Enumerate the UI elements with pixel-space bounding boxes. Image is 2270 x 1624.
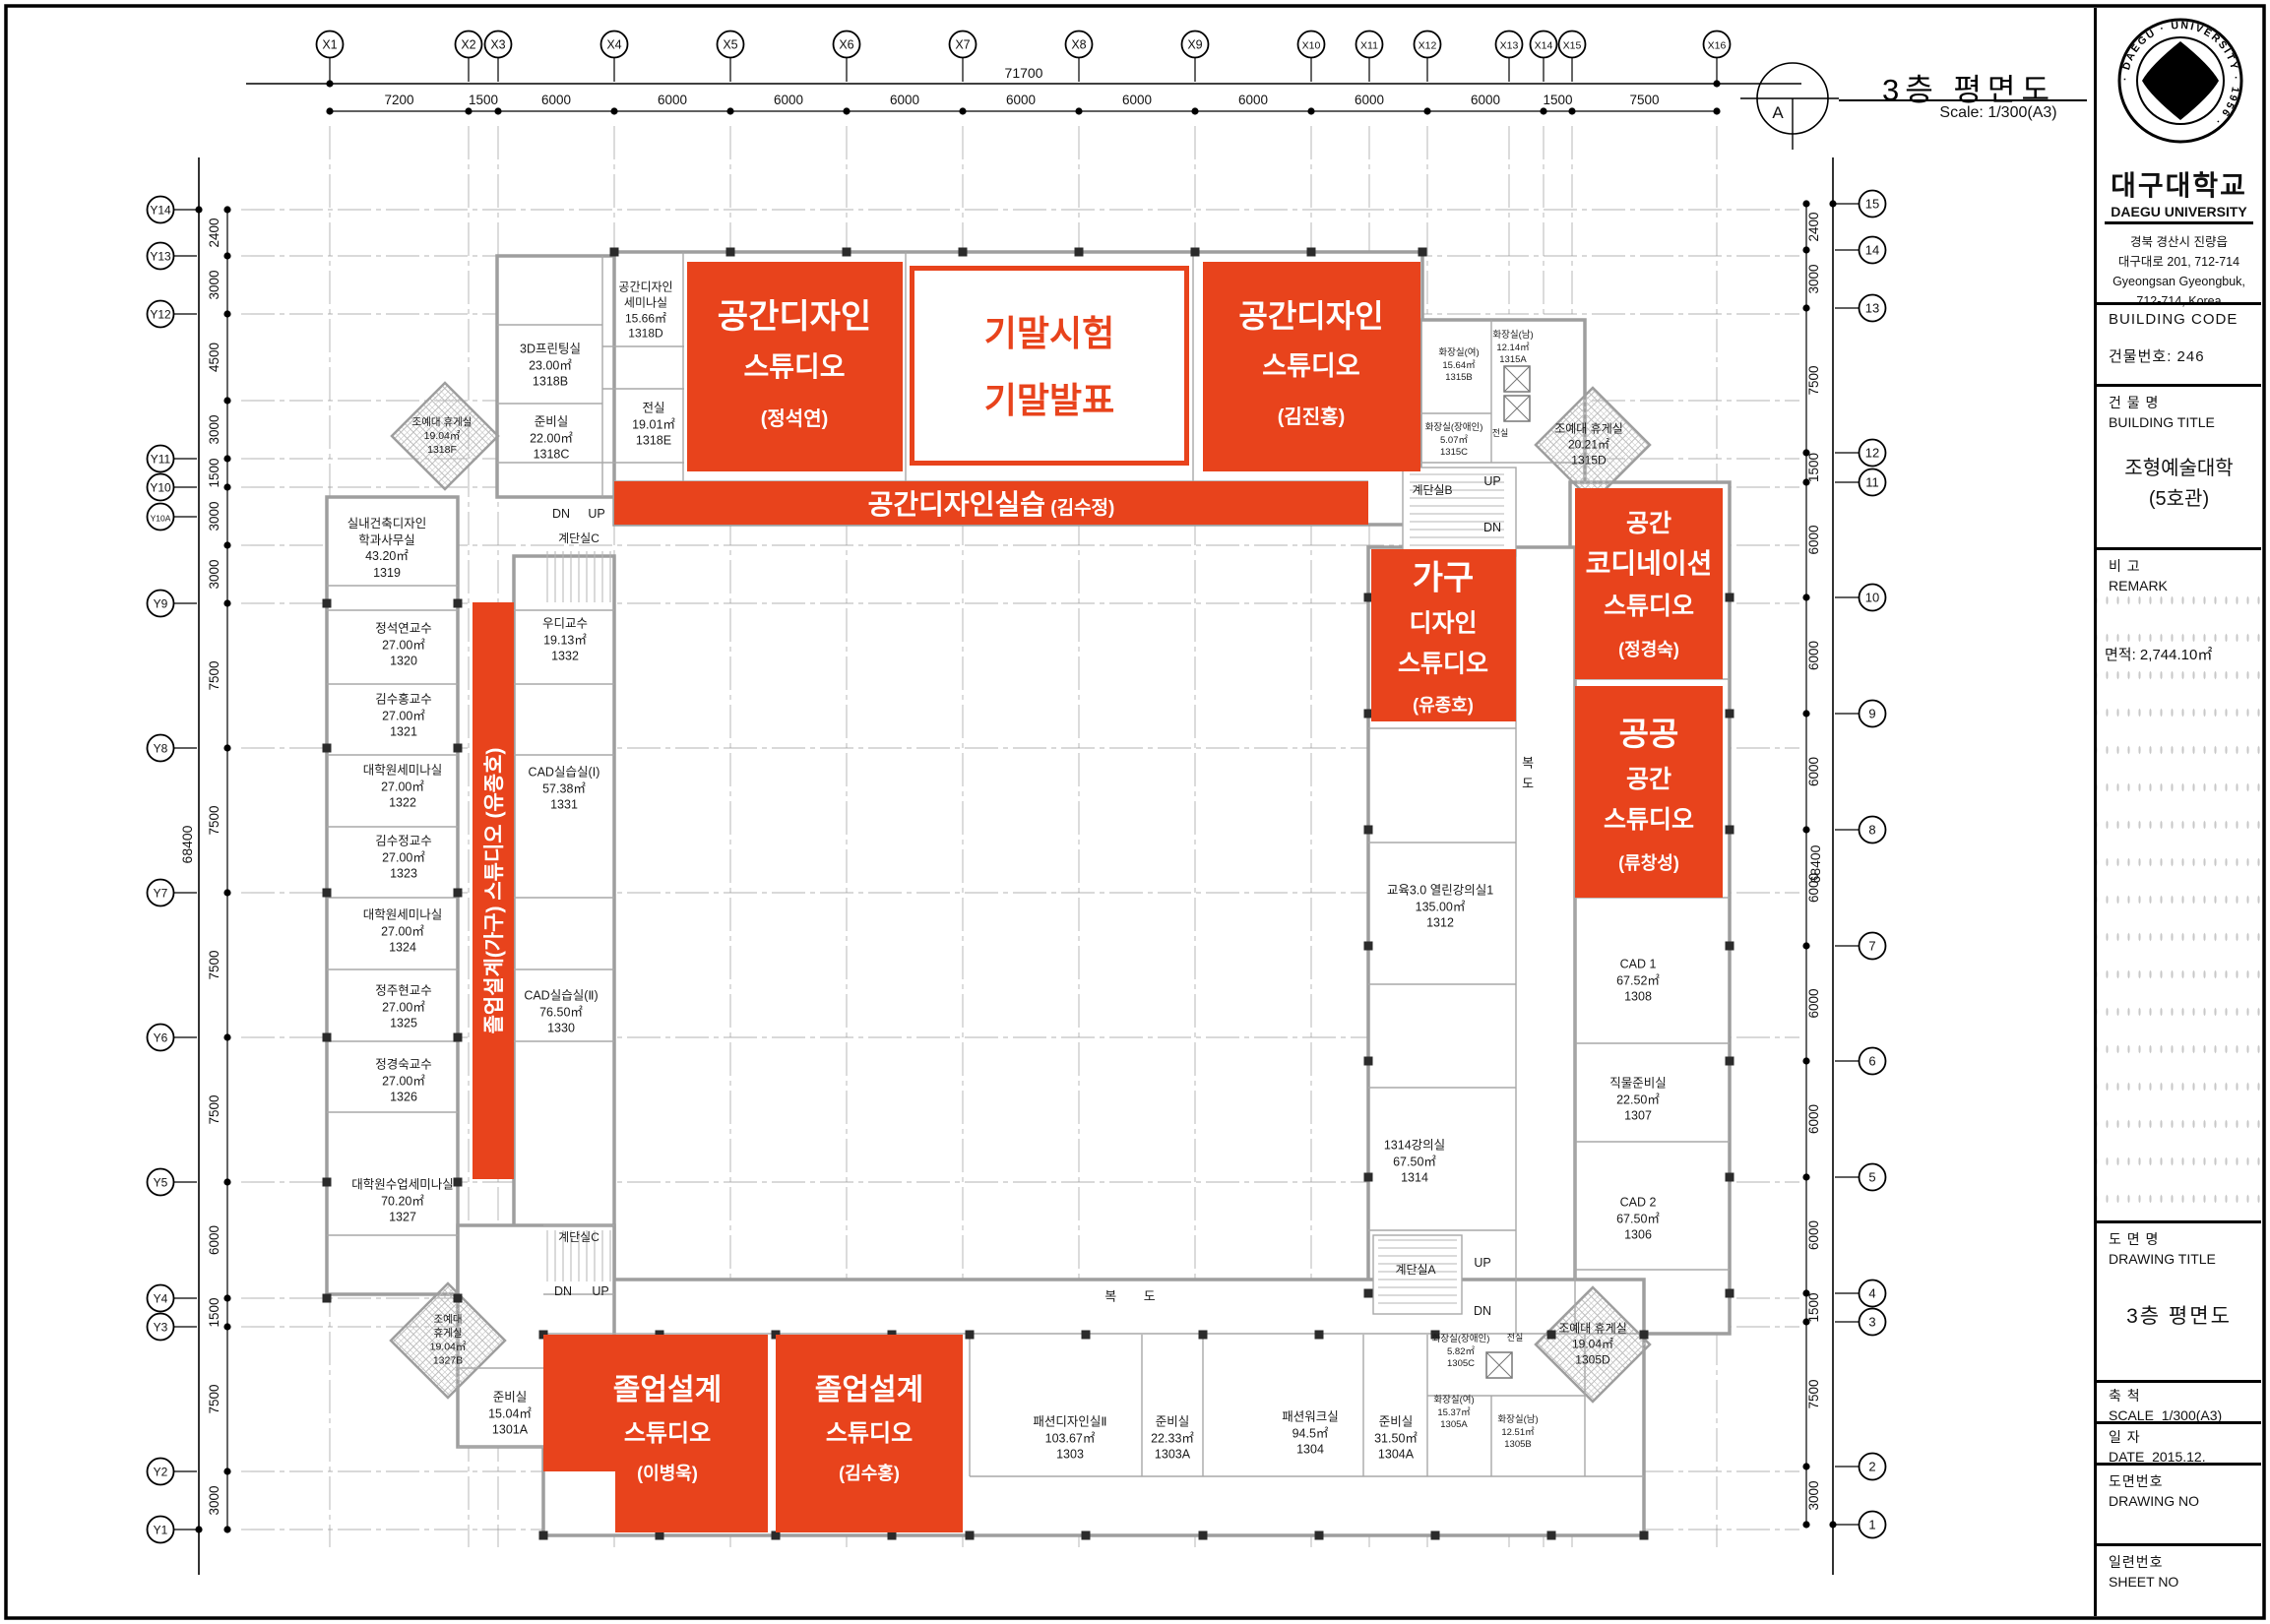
svg-text:Y10: Y10 [150, 481, 171, 495]
svg-text:6000: 6000 [1806, 988, 1821, 1018]
drawing-no-section: 도면번호 DRAWING NO [2097, 1463, 2261, 1543]
svg-text:6000: 6000 [890, 93, 919, 107]
section-mark-letter: A [1772, 103, 1784, 122]
svg-text:X2: X2 [461, 38, 475, 52]
svg-text:X12: X12 [1419, 40, 1437, 52]
svg-text:7: 7 [1868, 939, 1875, 954]
building-code-label: BUILDING CODE [2097, 305, 2261, 328]
svg-text:6000: 6000 [1006, 93, 1036, 107]
svg-text:Y5: Y5 [154, 1176, 168, 1190]
building-code-value: 건물번호: 246 [2097, 340, 2261, 366]
svg-text:11: 11 [1865, 475, 1879, 490]
svg-text:X9: X9 [1187, 38, 1202, 52]
sheet-no-section: 일련번호 SHEET NO [2097, 1543, 2261, 1613]
svg-text:Y11: Y11 [151, 453, 171, 467]
svg-text:X11: X11 [1360, 40, 1378, 52]
svg-text:6000: 6000 [1806, 1104, 1821, 1134]
svg-text:12: 12 [1865, 446, 1879, 461]
svg-text:7500: 7500 [207, 950, 221, 979]
svg-text:3000: 3000 [1806, 264, 1821, 293]
title-block-logo-section: · DAEGU · UNIVERSITY · 1956 · 대구대학교 DAEG… [2097, 8, 2261, 302]
building-title-section: 건 물 명 BUILDING TITLE 조형예술대학 (5호관) [2097, 384, 2261, 547]
svg-text:6000: 6000 [774, 93, 803, 107]
svg-text:7500: 7500 [1806, 365, 1821, 395]
svg-text:7500: 7500 [207, 805, 221, 835]
svg-text:3000: 3000 [207, 1485, 221, 1515]
remark-section: 비 고 REMARK 면적: 2,744.10㎡ [2097, 547, 2261, 1220]
svg-text:Y8: Y8 [154, 742, 168, 756]
building-title-value: 조형예술대학 (5호관) [2097, 452, 2261, 511]
svg-text:6000: 6000 [1806, 1220, 1821, 1250]
drawing-no-label-kr: 도면번호 [2097, 1466, 2261, 1491]
svg-text:Y2: Y2 [154, 1466, 168, 1479]
svg-text:Y13: Y13 [150, 250, 171, 264]
svg-text:7500: 7500 [207, 1384, 221, 1413]
svg-text:6000: 6000 [1806, 873, 1821, 903]
page-scale: Scale: 1/300(A3) [1910, 104, 2087, 122]
university-address: 경북 경산시 진량읍 대구대로 201, 712-714 Gyeongsan G… [2097, 232, 2261, 311]
date-section: 일 자 DATE 2015.12. [2097, 1421, 2261, 1463]
svg-text:Y4: Y4 [154, 1292, 168, 1306]
svg-text:10: 10 [1865, 591, 1879, 605]
svg-text:6000: 6000 [658, 93, 687, 107]
svg-text:2: 2 [1868, 1460, 1875, 1474]
svg-text:1500: 1500 [1543, 93, 1572, 107]
svg-text:X1: X1 [322, 38, 337, 52]
svg-text:X13: X13 [1500, 40, 1519, 52]
university-name-kr: 대구대학교 [2097, 164, 2261, 204]
svg-text:7500: 7500 [1629, 93, 1659, 107]
svg-text:15: 15 [1865, 197, 1879, 212]
title-underline [1839, 99, 2087, 101]
svg-text:X10: X10 [1302, 40, 1321, 52]
svg-text:8: 8 [1868, 823, 1875, 838]
building-code-section: BUILDING CODE 건물번호: 246 [2097, 302, 2261, 384]
scale-label-kr: 축 척 [2097, 1383, 2261, 1405]
svg-text:6000: 6000 [541, 93, 571, 107]
svg-text:3000: 3000 [207, 559, 221, 589]
svg-text:9: 9 [1868, 707, 1875, 721]
svg-text:Y3: Y3 [154, 1321, 168, 1335]
svg-text:3000: 3000 [207, 270, 221, 299]
svg-text:1500: 1500 [1806, 453, 1821, 482]
svg-text:1500: 1500 [207, 1297, 221, 1327]
dim-total-x: 71700 [1005, 65, 1043, 81]
svg-text:2400: 2400 [207, 218, 221, 247]
svg-text:7200: 7200 [384, 93, 413, 107]
svg-text:X3: X3 [490, 38, 505, 52]
drawing-title-value: 3층 평면도 [2097, 1300, 2261, 1330]
svg-text:X5: X5 [723, 38, 737, 52]
title-block: · DAEGU · UNIVERSITY · 1956 · 대구대학교 DAEG… [2094, 8, 2261, 1616]
drawing-title-label-en: DRAWING TITLE [2097, 1249, 2261, 1267]
svg-text:3000: 3000 [1806, 1480, 1821, 1510]
svg-text:68400: 68400 [179, 825, 195, 863]
svg-text:6000: 6000 [1806, 525, 1821, 554]
svg-text:6000: 6000 [207, 1225, 221, 1255]
svg-text:Y9: Y9 [154, 597, 168, 611]
svg-text:2400: 2400 [1806, 212, 1821, 241]
svg-text:6: 6 [1868, 1054, 1875, 1069]
remark-area-value: 면적: 2,744.10㎡ [2097, 590, 2261, 664]
svg-text:1500: 1500 [469, 93, 498, 107]
svg-text:Y7: Y7 [154, 887, 168, 901]
drawing-title-section: 도 면 명 DRAWING TITLE 3층 평면도 [2097, 1220, 2261, 1380]
page-title: 3층 평면도 [1851, 65, 2087, 109]
university-seal: · DAEGU · UNIVERSITY · 1956 · [2097, 8, 2264, 156]
svg-text:1500: 1500 [207, 458, 221, 487]
svg-text:7500: 7500 [207, 660, 221, 690]
sheet-no-label-en: SHEET NO [2097, 1572, 2261, 1590]
remark-label-kr: 비 고 [2097, 550, 2261, 576]
svg-text:X4: X4 [606, 38, 621, 52]
building-title-label-en: BUILDING TITLE [2097, 412, 2261, 430]
svg-text:Y14: Y14 [150, 204, 171, 218]
scale-section: 축 척 SCALE 1/300(A3) [2097, 1380, 2261, 1421]
building-title-label-kr: 건 물 명 [2097, 387, 2261, 412]
svg-text:6000: 6000 [1238, 93, 1268, 107]
svg-text:X7: X7 [955, 38, 970, 52]
remark-body: 면적: 2,744.10㎡ [2097, 590, 2261, 1220]
svg-text:7500: 7500 [1806, 1379, 1821, 1408]
svg-text:14: 14 [1865, 243, 1879, 258]
svg-text:4: 4 [1868, 1286, 1875, 1301]
svg-text:6000: 6000 [1471, 93, 1500, 107]
university-name-en: DAEGU UNIVERSITY [2105, 204, 2253, 224]
svg-text:6000: 6000 [1806, 757, 1821, 786]
svg-text:6000: 6000 [1355, 93, 1384, 107]
svg-text:7500: 7500 [207, 1094, 221, 1124]
svg-text:Y10A: Y10A [151, 514, 171, 524]
svg-text:6000: 6000 [1806, 641, 1821, 670]
svg-text:X6: X6 [839, 38, 853, 52]
svg-text:1500: 1500 [1806, 1292, 1821, 1322]
svg-text:X14: X14 [1535, 40, 1553, 52]
svg-text:X15: X15 [1563, 40, 1582, 52]
svg-text:5: 5 [1868, 1170, 1875, 1185]
svg-text:X8: X8 [1071, 38, 1086, 52]
svg-text:3000: 3000 [207, 501, 221, 531]
svg-text:Y1: Y1 [154, 1524, 168, 1537]
svg-text:13: 13 [1865, 301, 1879, 316]
svg-text:1: 1 [1868, 1518, 1875, 1532]
drawing-no-label-en: DRAWING NO [2097, 1491, 2261, 1509]
floor-plan-drawing: 7170072001500600060006000600060006000600… [0, 0, 2270, 1624]
svg-text:Y12: Y12 [150, 308, 171, 322]
svg-text:Y6: Y6 [154, 1031, 168, 1045]
drawing-title-label-kr: 도 면 명 [2097, 1223, 2261, 1249]
floor-plan-sheet: 7170072001500600060006000600060006000600… [0, 0, 2270, 1624]
svg-text:3000: 3000 [207, 414, 221, 444]
svg-text:3: 3 [1868, 1315, 1875, 1330]
sheet-no-label-kr: 일련번호 [2097, 1546, 2261, 1572]
date-label-kr: 일 자 [2097, 1424, 2261, 1447]
svg-text:X16: X16 [1708, 40, 1727, 52]
svg-text:6000: 6000 [1122, 93, 1152, 107]
svg-text:4500: 4500 [207, 343, 221, 372]
